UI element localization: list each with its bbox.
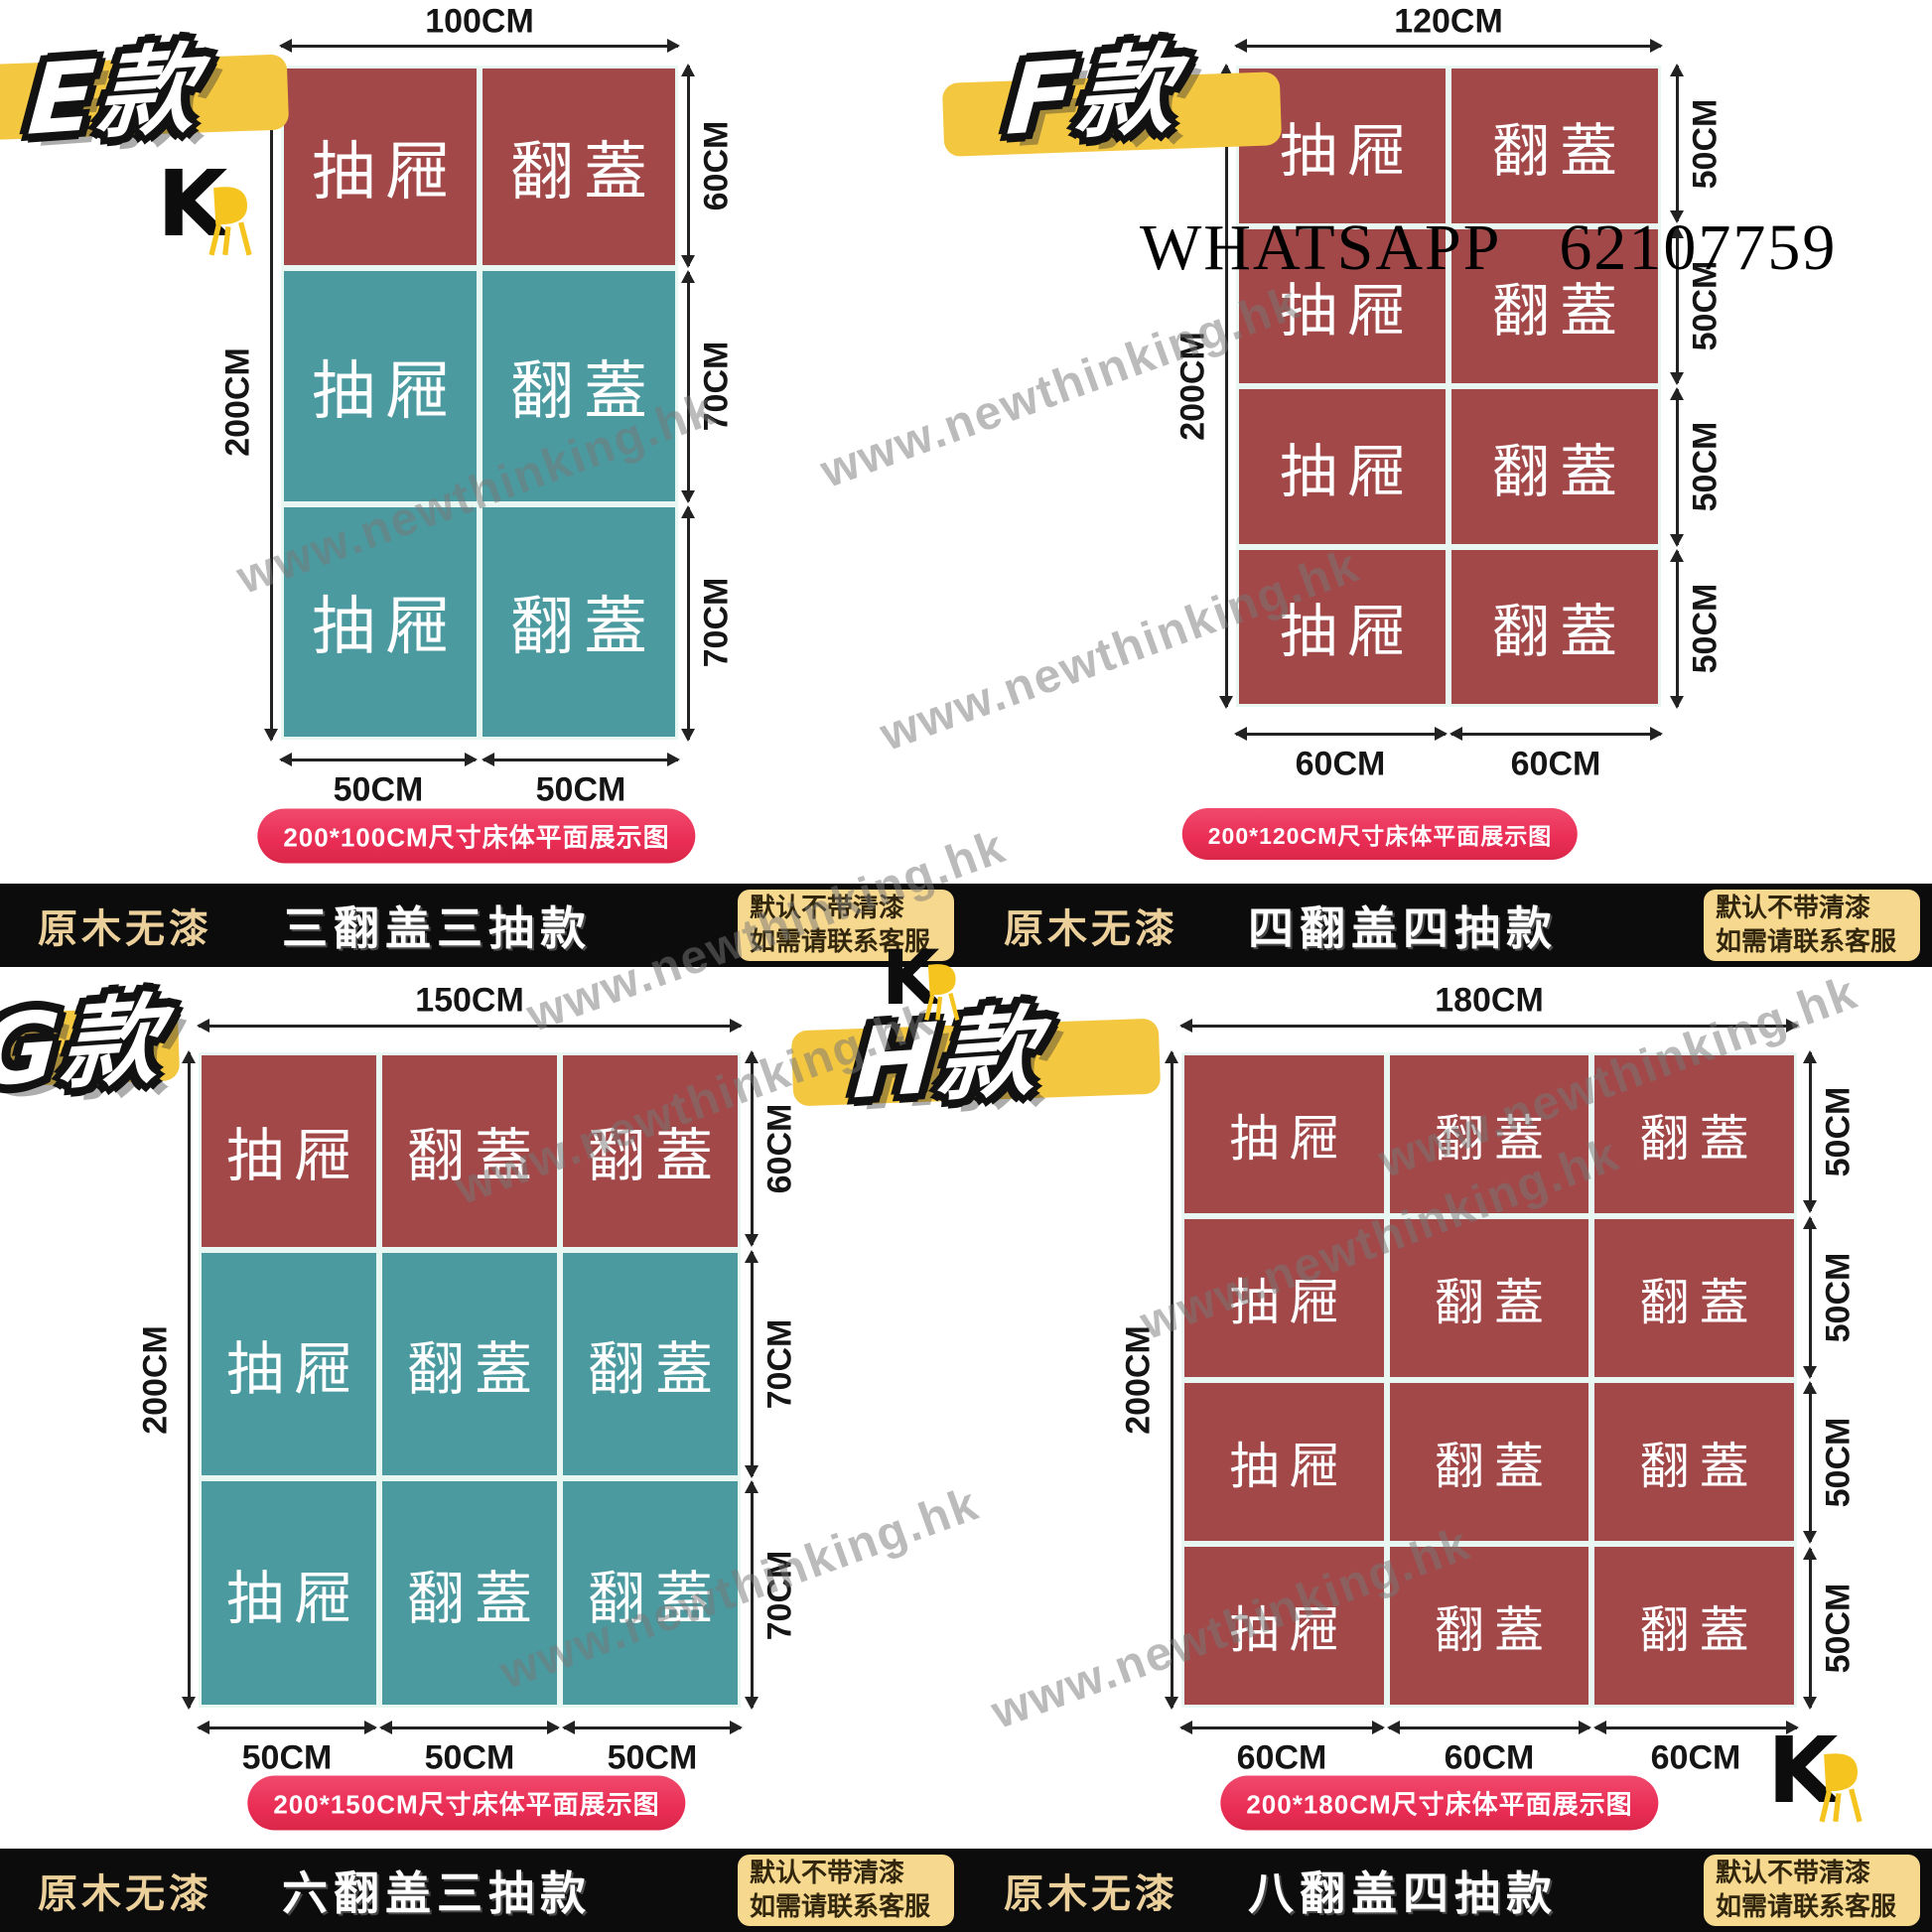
dimension-arrow [199, 1726, 375, 1729]
dim-right-f: 50CM [1687, 584, 1725, 674]
dimension-arrow [1389, 1726, 1589, 1729]
badge-line: 如需请联系客服 [750, 1890, 942, 1924]
dimension-arrow [751, 1252, 754, 1476]
dim-bottom-f: 60CM [1511, 746, 1601, 784]
bed-cell: 抽屜 [1184, 1055, 1384, 1213]
dim-left-g: 200CM [137, 1325, 176, 1435]
dimension-arrow [1676, 66, 1679, 221]
style-label-f: F款 [1003, 10, 1181, 162]
dimension-arrow [1676, 551, 1679, 707]
banner-right: 原木无漆 四翻盖四抽款 默认不带清漆 如需请联系客服 [966, 884, 1932, 967]
bed-cell: 抽屜 [1239, 389, 1446, 544]
banner-badge: 默认不带清漆 如需请联系客服 [1704, 1855, 1920, 1926]
banner-title: 三翻盖三抽款 [282, 893, 592, 958]
dimension-arrow [1451, 733, 1661, 736]
dimension-arrow [483, 759, 678, 761]
banner-tag: 原木无漆 [38, 1862, 212, 1919]
dim-bottom-h: 60CM [1445, 1739, 1535, 1778]
banner-title: 六翻盖三抽款 [282, 1858, 592, 1923]
bed-cell: 抽屜 [202, 1055, 376, 1247]
bed-cell: 翻蓋 [1594, 1219, 1794, 1377]
dim-right-g: 60CM [761, 1104, 800, 1194]
badge-line: 如需请联系客服 [1716, 925, 1908, 959]
chair-icon [1813, 1751, 1866, 1825]
dimension-arrow [564, 1726, 741, 1729]
dim-bottom-h: 60CM [1237, 1739, 1327, 1778]
dim-bottom-g: 50CM [242, 1739, 333, 1778]
dimension-arrow [687, 507, 690, 740]
dim-right-h: 50CM [1820, 1253, 1859, 1343]
dim-bottom-e: 50CM [536, 771, 626, 810]
banner-badge: 默认不带清漆 如需请联系客服 [738, 1855, 954, 1926]
dim-right-h: 50CM [1820, 1418, 1859, 1508]
bed-cell: 翻蓋 [1594, 1383, 1794, 1541]
dim-bottom-e: 50CM [334, 771, 424, 810]
caption-e: 200*100CM尺寸床体平面展示图 [257, 809, 695, 864]
bed-cell: 翻蓋 [1594, 1547, 1794, 1705]
bed-cell: 抽屜 [284, 271, 477, 500]
dimension-arrow [1809, 1052, 1812, 1211]
bed-cell: 抽屜 [202, 1481, 376, 1705]
bed-cell: 翻蓋 [483, 507, 675, 737]
banner-strip-2: 原木无漆 六翻盖三抽款 默认不带清漆 如需请联系客服 原木无漆 八翻盖四抽款 默… [0, 1849, 1932, 1932]
dimension-arrow [188, 1052, 191, 1708]
caption-h: 200*180CM尺寸床体平面展示图 [1220, 1776, 1658, 1831]
dim-left-e: 200CM [219, 347, 258, 457]
dim-top-h: 180CM [1435, 982, 1544, 1021]
whatsapp-number: 62107759 [1559, 210, 1837, 286]
brand-logo-k: K [1767, 1725, 1906, 1840]
style-label-g: G款 [0, 961, 167, 1114]
banner-title: 八翻盖四抽款 [1248, 1858, 1558, 1923]
dimension-arrow [1236, 733, 1446, 736]
whatsapp-label: WHATSAPP [1140, 210, 1501, 286]
badge-line: 如需请联系客服 [1716, 1890, 1908, 1924]
dimension-arrow [381, 1726, 558, 1729]
dimension-arrow [1676, 389, 1679, 545]
dim-right-h: 50CM [1820, 1584, 1859, 1674]
banner-badge: 默认不带清漆 如需请联系客服 [1704, 890, 1920, 961]
banner-title: 四翻盖四抽款 [1248, 893, 1558, 958]
dim-right-f: 50CM [1687, 422, 1725, 512]
dim-top-f: 120CM [1394, 3, 1503, 42]
bed-cell: 抽屜 [202, 1253, 376, 1476]
banner-right: 原木无漆 八翻盖四抽款 默认不带清漆 如需请联系客服 [966, 1849, 1932, 1932]
dim-bottom-f: 60CM [1296, 746, 1386, 784]
bed-cell: 翻蓋 [563, 1253, 738, 1476]
bed-cell: 翻蓋 [483, 69, 675, 265]
caption-f: 200*120CM尺寸床体平面展示图 [1182, 808, 1578, 860]
badge-line: 默认不带清漆 [750, 1857, 942, 1890]
dim-right-e: 60CM [698, 121, 737, 211]
dimension-arrow [281, 759, 476, 761]
banner-tag: 原木无漆 [38, 897, 212, 954]
dimension-arrow [1236, 45, 1661, 48]
dimension-arrow [687, 66, 690, 266]
bed-cell: 翻蓋 [382, 1253, 557, 1476]
bed-cell: 翻蓋 [1451, 550, 1658, 705]
banner-left: 原木无漆 六翻盖三抽款 默认不带清漆 如需请联系客服 [0, 1849, 966, 1932]
style-label-e: E款 [24, 10, 203, 162]
dim-right-f: 50CM [1687, 99, 1725, 190]
dim-top-e: 100CM [425, 3, 534, 42]
bed-cell: 抽屜 [284, 69, 477, 265]
watermark: www.newthinking.hk [813, 275, 1307, 499]
dim-right-g: 70CM [761, 1319, 800, 1410]
dim-right-e: 70CM [698, 578, 737, 668]
banner-tag: 原木无漆 [1004, 1862, 1178, 1919]
dimension-arrow [1809, 1218, 1812, 1377]
whatsapp-contact: WHATSAPP 62107759 [1140, 210, 1837, 286]
bed-cell: 翻蓋 [1451, 389, 1658, 544]
dimension-arrow [1171, 1052, 1173, 1708]
banner-tag: 原木无漆 [1004, 897, 1178, 954]
dim-bottom-g: 50CM [608, 1739, 698, 1778]
dim-bottom-g: 50CM [425, 1739, 515, 1778]
dim-top-g: 150CM [415, 982, 524, 1021]
bed-cell: 翻蓋 [1390, 1383, 1589, 1541]
badge-line: 默认不带清漆 [1716, 892, 1908, 925]
dimension-arrow [1809, 1549, 1812, 1708]
badge-line: 默认不带清漆 [1716, 1857, 1908, 1890]
bed-cell: 抽屜 [1184, 1383, 1384, 1541]
dim-bottom-h: 60CM [1651, 1739, 1741, 1778]
chair-icon [203, 185, 256, 258]
dim-right-h: 50CM [1820, 1087, 1859, 1177]
dimension-arrow [1181, 1726, 1383, 1729]
brand-logo-k: K [157, 159, 296, 273]
bed-diagram-e: 抽屜 翻蓋 抽屜 翻蓋 抽屜 翻蓋 [281, 66, 678, 740]
bed-cell: 翻蓋 [1451, 69, 1658, 223]
dimension-arrow [281, 45, 678, 48]
dimension-arrow [1809, 1383, 1812, 1542]
caption-g: 200*150CM尺寸床体平面展示图 [247, 1776, 685, 1831]
dimension-arrow [199, 1025, 741, 1028]
